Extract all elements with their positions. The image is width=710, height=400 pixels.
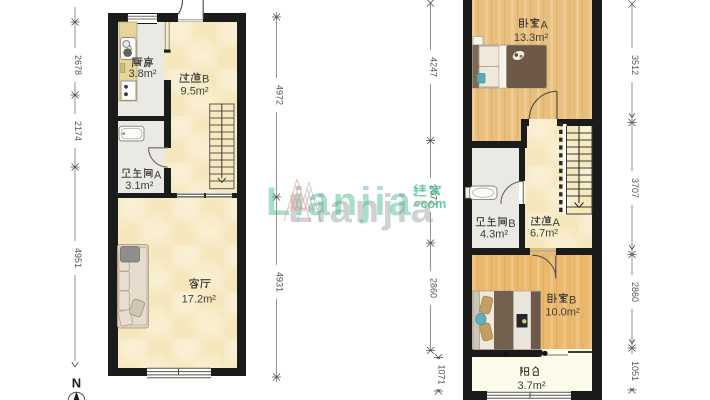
svg-text:N: N (72, 376, 81, 391)
svg-text:1051: 1051 (630, 361, 640, 381)
svg-text:9.5m²: 9.5m² (180, 85, 208, 97)
svg-text:B: B (569, 295, 576, 307)
svg-text:2678: 2678 (73, 55, 83, 75)
svg-text:3707: 3707 (630, 178, 640, 198)
svg-text:2174: 2174 (73, 121, 83, 141)
svg-text:3.8m²: 3.8m² (128, 68, 156, 80)
svg-text:4972: 4972 (275, 85, 285, 105)
svg-text:com: com (421, 197, 447, 211)
svg-text:10.0m²: 10.0m² (545, 307, 580, 319)
svg-text:4247: 4247 (429, 57, 439, 77)
svg-text:3.1m²: 3.1m² (125, 180, 153, 192)
svg-text:2860: 2860 (630, 282, 640, 302)
svg-text:4951: 4951 (73, 248, 83, 268)
svg-text:6.7m²: 6.7m² (530, 228, 558, 240)
svg-text:3512: 3512 (630, 55, 640, 75)
svg-text:13.3m²: 13.3m² (514, 32, 549, 44)
svg-text:A: A (541, 20, 549, 32)
svg-text:4.3m²: 4.3m² (480, 229, 508, 241)
svg-text:17.2m²: 17.2m² (182, 293, 217, 305)
svg-text:B: B (508, 218, 515, 230)
svg-text:2860: 2860 (429, 278, 439, 298)
svg-text:A: A (154, 170, 162, 182)
svg-text:4931: 4931 (275, 272, 285, 292)
svg-text:Lianjia: Lianjia (266, 180, 414, 224)
svg-text:3.7m²: 3.7m² (517, 380, 545, 392)
svg-text:B: B (202, 74, 209, 86)
svg-text:1071: 1071 (437, 364, 447, 384)
